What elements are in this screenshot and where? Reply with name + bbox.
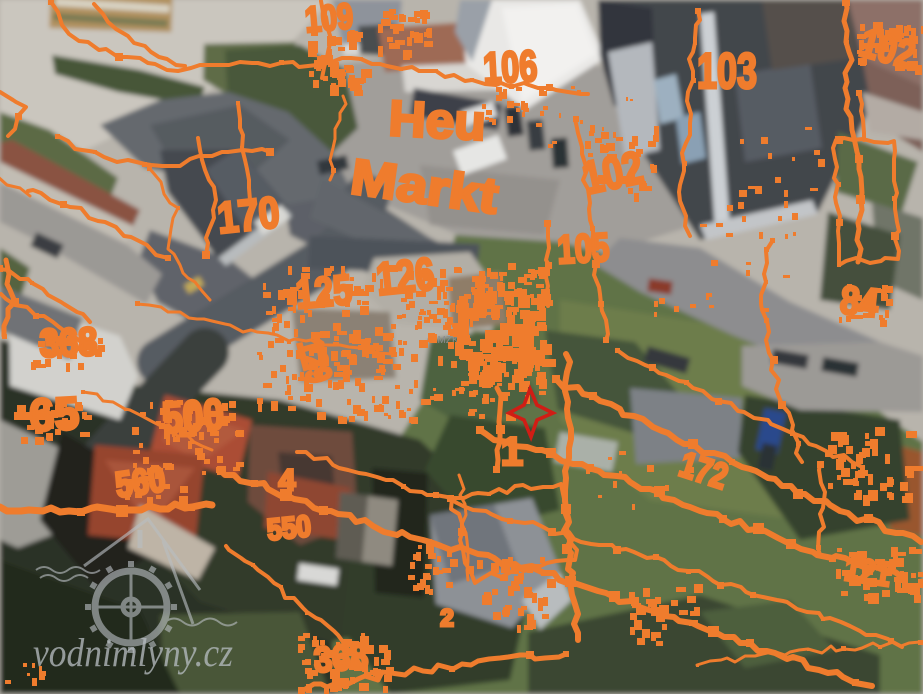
svg-text:125: 125 — [294, 266, 354, 318]
svg-text:84: 84 — [838, 278, 881, 326]
svg-text:368: 368 — [312, 635, 369, 681]
svg-text:1: 1 — [501, 430, 523, 474]
svg-text:Heu: Heu — [387, 90, 487, 151]
svg-text:106: 106 — [482, 42, 538, 94]
svg-text:550: 550 — [265, 510, 312, 547]
svg-text:vodnimlyny.cz: vodnimlyny.cz — [33, 630, 233, 675]
svg-text:368: 368 — [39, 320, 99, 366]
svg-text:105: 105 — [556, 226, 610, 273]
svg-text:2: 2 — [440, 605, 453, 632]
svg-text:560: 560 — [113, 458, 168, 506]
svg-text:103: 103 — [697, 43, 757, 99]
svg-text:109: 109 — [303, 0, 354, 40]
svg-text:4: 4 — [279, 464, 296, 497]
svg-text:121: 121 — [842, 550, 893, 594]
svg-text:170: 170 — [215, 188, 282, 243]
svg-text:500: 500 — [160, 390, 225, 443]
svg-text:65: 65 — [28, 387, 81, 442]
svg-text:126: 126 — [374, 247, 437, 305]
